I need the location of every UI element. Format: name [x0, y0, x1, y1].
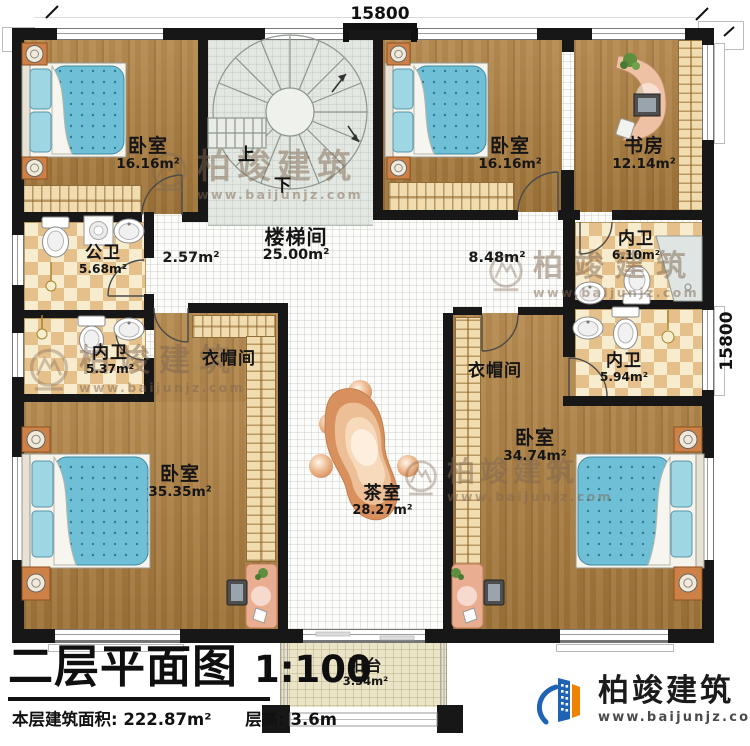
wardrobe-cloak-right-side	[455, 317, 481, 565]
stairwell-floor	[208, 40, 373, 226]
wall-segment	[447, 629, 560, 643]
wall-segment	[12, 212, 142, 222]
wardrobe-cloak-left-side	[246, 336, 276, 562]
window-sill	[556, 644, 674, 652]
wall-segment	[561, 170, 574, 216]
window	[12, 333, 24, 377]
wall-segment	[12, 394, 154, 402]
window	[702, 458, 714, 560]
drawing-scale: 1:100	[254, 648, 372, 691]
wall-segment	[443, 313, 453, 631]
room-label-public-bath: 公卫5.68m²	[63, 244, 143, 276]
wall-segment	[453, 307, 482, 315]
brand-logo-block: 柏竣建筑 www.baijunjz.com	[534, 672, 750, 728]
balcony-sliding-door	[303, 629, 425, 643]
wall-segment	[373, 210, 518, 220]
wall-segment	[563, 300, 714, 309]
wall-segment	[144, 212, 154, 258]
window	[265, 28, 345, 40]
window	[418, 28, 537, 40]
window	[12, 457, 24, 560]
title-block: 二层平面图 1:100	[8, 642, 372, 692]
corridor-right-area: 8.48m²	[462, 250, 532, 266]
brand-url: www.baijunjz.com	[598, 710, 750, 725]
room-label-bedroom-tl: 卧室16.16m²	[93, 136, 203, 172]
wall-segment	[198, 28, 208, 222]
wall-segment	[12, 310, 144, 318]
corridor-left-area: 2.57m²	[162, 250, 220, 266]
bedroom-bl-floor	[24, 402, 278, 629]
wall-segment	[563, 396, 714, 406]
wall-segment	[563, 212, 575, 304]
window	[57, 28, 163, 40]
wardrobe-cloak-left-top	[192, 315, 276, 338]
room-label-stairwell: 楼梯间25.00m²	[246, 226, 346, 264]
floor-height-text: 层高: 3.6m	[245, 710, 337, 729]
wardrobe-study	[678, 40, 704, 212]
dimension-right: 15800	[717, 301, 737, 381]
wall-segment	[373, 28, 383, 220]
wall-segment	[278, 313, 288, 631]
room-label-bath-left: 内卫5.37m²	[70, 344, 150, 376]
room-label-bath-top-right: 内卫6.10m²	[596, 230, 676, 262]
window	[702, 310, 714, 390]
brand-text: 柏竣建筑 www.baijunjz.com	[598, 676, 750, 725]
stairs-down-label: 下	[274, 171, 291, 196]
wall-segment	[144, 303, 154, 313]
wall-segment	[12, 28, 24, 235]
window	[12, 235, 24, 285]
wall-segment	[12, 377, 24, 457]
floor-area-text: 本层建筑面积: 222.87m²	[12, 710, 211, 729]
wall-segment	[12, 285, 24, 333]
room-label-bath-right: 内卫5.94m²	[584, 352, 664, 384]
title-underline	[8, 697, 270, 701]
wall-segment	[562, 28, 574, 52]
wall-segment	[702, 140, 714, 310]
window	[592, 28, 685, 40]
room-label-bedroom-br: 卧室34.74m²	[480, 428, 590, 464]
room-label-bedroom-tm: 卧室16.16m²	[455, 136, 565, 172]
wall-segment	[182, 212, 208, 222]
title-info: 本层建筑面积: 222.87m² 层高: 3.6m	[12, 706, 337, 730]
wall-segment	[563, 303, 575, 357]
stairs-up-label: 上	[238, 140, 255, 165]
room-label-study: 书房12.14m²	[589, 136, 699, 172]
room-label-cloak-left: 衣帽间	[184, 350, 274, 369]
window	[560, 629, 668, 643]
room-label-tea-room: 茶室28.27m²	[340, 484, 425, 518]
room-label-bedroom-bl: 卧室35.35m²	[125, 464, 235, 500]
window-sill-right-2	[714, 43, 725, 144]
window	[702, 45, 714, 140]
wall-segment	[425, 629, 447, 643]
room-label-cloak-right: 衣帽间	[450, 362, 540, 381]
dimension-top: 15800	[342, 4, 418, 24]
balcony-pillar	[437, 705, 463, 733]
floor-plan-page: 柏竣建筑 www.baijunjz.com 柏竣建筑 www.baijunjz.…	[0, 0, 750, 746]
wall-segment	[518, 307, 563, 315]
wardrobe-bedroom-tm	[388, 182, 514, 212]
page-title: 二层平面图	[8, 642, 238, 692]
wall-segment	[188, 303, 288, 313]
brand-name: 柏竣建筑	[598, 676, 750, 707]
wall-segment	[163, 28, 265, 40]
brand-logo-icon	[534, 672, 590, 728]
wall-segment	[702, 28, 714, 45]
wall-segment	[668, 629, 714, 643]
wall-segment	[612, 210, 714, 220]
